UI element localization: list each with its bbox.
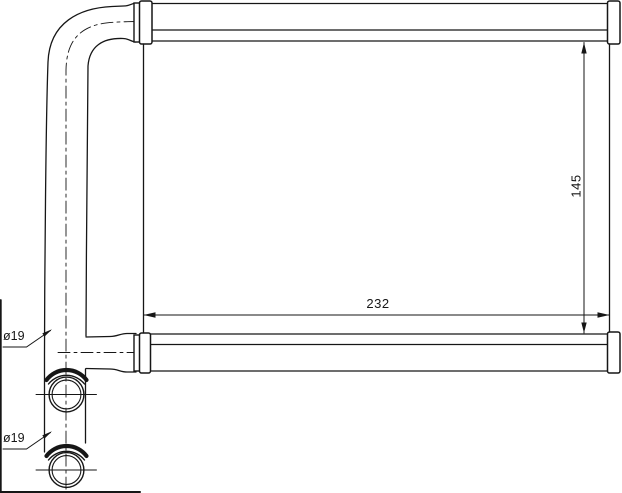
height-dimension-value: 145 xyxy=(570,174,583,197)
top-tank-pipe-collar xyxy=(140,1,153,44)
pipe-centerline xyxy=(66,22,136,492)
lower-pipe-bottom-edge xyxy=(86,369,136,373)
height-dim-arrow-top xyxy=(581,43,586,54)
top-tank-right-cap xyxy=(608,1,621,44)
width-dimension-value: 232 xyxy=(360,297,396,310)
bottom-tank xyxy=(134,332,620,373)
upper-dia-leader-arrow xyxy=(42,329,52,336)
upper-pipe-diameter-value: ø19 xyxy=(3,330,25,343)
lower-dia-leader-arrow xyxy=(42,431,52,438)
lower-pipe-top-edge xyxy=(86,334,136,338)
bottom-tank-pipe-collar xyxy=(140,333,151,373)
width-dim-arrow-left xyxy=(144,312,156,317)
width-dimension xyxy=(144,312,610,317)
upper-pipe-inner-edge xyxy=(86,38,136,336)
top-tank xyxy=(134,1,620,44)
technical-drawing-canvas: 232 145 ø19 ø19 xyxy=(0,0,622,493)
height-dim-arrow-bottom xyxy=(581,323,586,334)
width-dim-arrow-right xyxy=(598,312,610,317)
core-outline xyxy=(144,44,610,333)
drawing-linework xyxy=(0,0,622,493)
inlet-outlet-pipes xyxy=(45,3,143,491)
bottom-tank-right-cap xyxy=(608,332,621,373)
lower-pipe-diameter-value: ø19 xyxy=(3,432,25,445)
upper-pipe-outer-edge xyxy=(45,3,137,452)
